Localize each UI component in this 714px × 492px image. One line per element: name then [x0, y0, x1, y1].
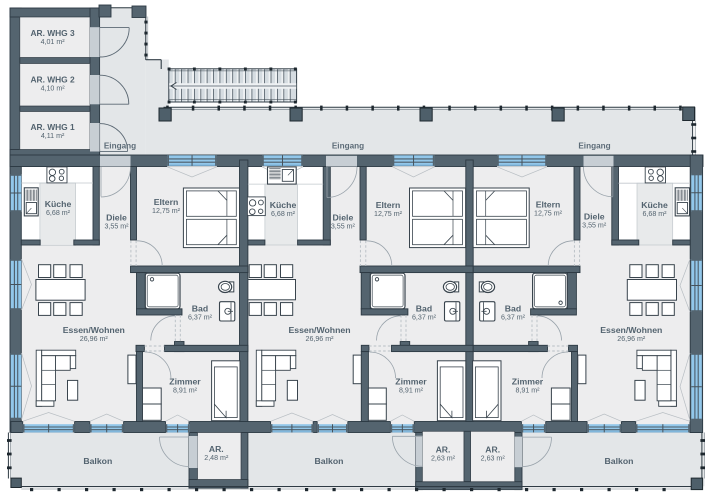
svg-text:AR.: AR. — [485, 444, 500, 454]
svg-text:4,01 m²: 4,01 m² — [41, 38, 66, 46]
svg-text:Balkon: Balkon — [83, 456, 112, 466]
svg-text:4,10 m²: 4,10 m² — [41, 84, 66, 92]
svg-text:2,63 m²: 2,63 m² — [481, 454, 506, 462]
svg-text:Küche: Küche — [45, 199, 72, 209]
svg-text:Eltern: Eltern — [154, 197, 179, 207]
svg-text:8,91 m²: 8,91 m² — [173, 387, 198, 395]
svg-text:AR. WHG 1: AR. WHG 1 — [30, 122, 75, 132]
svg-text:3,55 m²: 3,55 m² — [331, 222, 356, 230]
svg-text:AR.: AR. — [436, 444, 451, 454]
svg-text:Diele: Diele — [106, 212, 127, 222]
svg-text:12,75 m²: 12,75 m² — [374, 210, 403, 218]
svg-text:12,75 m²: 12,75 m² — [152, 207, 181, 215]
svg-text:3,55 m²: 3,55 m² — [582, 222, 607, 230]
svg-text:6,37 m²: 6,37 m² — [188, 314, 213, 322]
svg-text:Zimmer: Zimmer — [512, 377, 544, 387]
svg-text:8,91 m²: 8,91 m² — [515, 387, 540, 395]
svg-text:2,48 m²: 2,48 m² — [204, 454, 229, 462]
svg-text:Bad: Bad — [416, 304, 432, 314]
svg-text:AR. WHG 3: AR. WHG 3 — [30, 28, 75, 38]
svg-text:Eingang: Eingang — [578, 142, 610, 151]
svg-text:Eingang: Eingang — [332, 142, 364, 151]
svg-text:AR.: AR. — [209, 444, 224, 454]
svg-text:Bad: Bad — [505, 304, 521, 314]
svg-text:6,68 m²: 6,68 m² — [271, 210, 296, 218]
svg-text:6,37 m²: 6,37 m² — [412, 314, 437, 322]
svg-text:26,96 m²: 26,96 m² — [80, 335, 109, 343]
svg-text:Eingang: Eingang — [104, 142, 136, 151]
svg-text:Bad: Bad — [192, 304, 208, 314]
svg-text:Küche: Küche — [270, 200, 297, 210]
svg-text:Diele: Diele — [584, 212, 605, 222]
svg-text:2,63 m²: 2,63 m² — [431, 454, 456, 462]
svg-text:26,96 m²: 26,96 m² — [617, 335, 646, 343]
svg-text:Essen/Wohnen: Essen/Wohnen — [600, 325, 662, 335]
svg-text:3,55 m²: 3,55 m² — [104, 222, 129, 230]
svg-text:4,11 m²: 4,11 m² — [41, 132, 65, 140]
svg-text:8,91 m²: 8,91 m² — [399, 387, 424, 395]
svg-text:12,75 m²: 12,75 m² — [534, 210, 563, 218]
svg-text:Küche: Küche — [641, 200, 668, 210]
svg-text:Essen/Wohnen: Essen/Wohnen — [63, 325, 125, 335]
svg-text:6,68 m²: 6,68 m² — [642, 210, 667, 218]
svg-text:6,37 m²: 6,37 m² — [501, 314, 526, 322]
svg-text:26,96 m²: 26,96 m² — [306, 335, 335, 343]
svg-text:Balkon: Balkon — [605, 456, 634, 466]
svg-text:Eltern: Eltern — [536, 200, 561, 210]
svg-text:Essen/Wohnen: Essen/Wohnen — [288, 325, 350, 335]
svg-text:6,68 m²: 6,68 m² — [46, 209, 71, 217]
svg-text:Diele: Diele — [333, 212, 354, 222]
svg-text:Balkon: Balkon — [315, 456, 344, 466]
svg-text:AR. WHG 2: AR. WHG 2 — [30, 74, 75, 84]
svg-text:Zimmer: Zimmer — [395, 377, 427, 387]
svg-text:Eltern: Eltern — [376, 200, 401, 210]
svg-text:Zimmer: Zimmer — [169, 377, 201, 387]
